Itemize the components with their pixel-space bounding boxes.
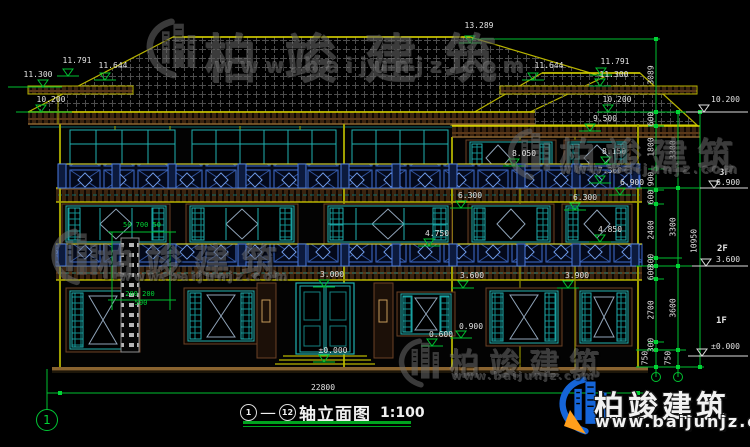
brand-url: www.baijunjz.com: [595, 412, 750, 431]
third-floor-windows: [70, 130, 448, 166]
chain-dim: 3089: [647, 65, 656, 84]
title-axis-end: 12: [279, 404, 296, 421]
third-floor-railing: [58, 164, 640, 188]
title-underline-thin: [243, 426, 411, 427]
elev-label: 0.600: [429, 330, 453, 339]
elev-label: 11.300: [600, 70, 629, 79]
floor-label-2f: 2F: [717, 244, 728, 254]
watermark-left-url: www.baijunjz.com: [120, 270, 291, 284]
elev-label: 3.000: [320, 270, 344, 279]
elev-label: 11.791: [601, 57, 630, 66]
detail-dim-chimney-top: 50 700 50: [123, 221, 161, 229]
elev-label: 11.300: [24, 70, 53, 79]
overall-width-dim: 22800: [311, 383, 335, 392]
floor-elev-2f: 3.600: [716, 255, 740, 264]
chain-dim: 750: [664, 351, 673, 365]
elev-label: 6.300: [573, 193, 597, 202]
detail-dim-chimney-base: 500: [135, 299, 148, 307]
elev-label: 0.900: [459, 322, 483, 331]
watermark-top-url: www.baijunjz.com: [215, 54, 531, 78]
title-axis-start: 1: [240, 404, 257, 421]
elev-label: 11.644: [535, 61, 564, 70]
watermark-bottom-url: www.baijunjz.com: [452, 370, 596, 383]
elev-label: 4.750: [425, 229, 449, 238]
margin-elev-top: 10.200: [711, 95, 740, 104]
chain-dim: 3300: [669, 217, 678, 236]
floor-elev-1f: ±0.000: [711, 342, 740, 351]
chain-dim: 10950: [690, 229, 699, 253]
elev-label: 4.850: [598, 225, 622, 234]
chain-dim: 2700: [647, 300, 656, 319]
elev-label: 11.644: [99, 61, 128, 70]
elev-label: 11.791: [63, 56, 92, 65]
cad-canvas: 柏竣建筑 www.baijunjz.com 柏竣建筑 www.baijunjz.…: [0, 0, 750, 447]
elev-label: 8.050: [512, 149, 536, 158]
title-axis-separator: —: [260, 403, 276, 422]
elev-label: ±0.000: [319, 346, 348, 355]
chain-dim: 3600: [669, 298, 678, 317]
chain-dim: 2400: [647, 220, 656, 239]
elev-label: 3.900: [565, 271, 589, 280]
chain-dim: 600: [647, 190, 656, 204]
chain-dim: 600: [647, 112, 656, 126]
title-scale: 1:100: [380, 405, 425, 421]
title-underline: [243, 421, 411, 424]
elev-label: 10.200: [603, 95, 632, 104]
chain-dim: 750: [641, 351, 650, 365]
watermark-right-url: www.baijunjz.com: [560, 163, 741, 178]
chain-dim: 600: [647, 266, 656, 280]
axis-bubble-1: 1: [36, 409, 58, 431]
elev-label: 9.500: [593, 114, 617, 123]
floor-label-1f: 1F: [716, 316, 727, 326]
elev-label: 6.300: [458, 191, 482, 200]
elev-label: 10.200: [37, 95, 66, 104]
detail-dim-chimney-mid: 200 200: [125, 290, 155, 298]
elev-label: 3.600: [460, 271, 484, 280]
